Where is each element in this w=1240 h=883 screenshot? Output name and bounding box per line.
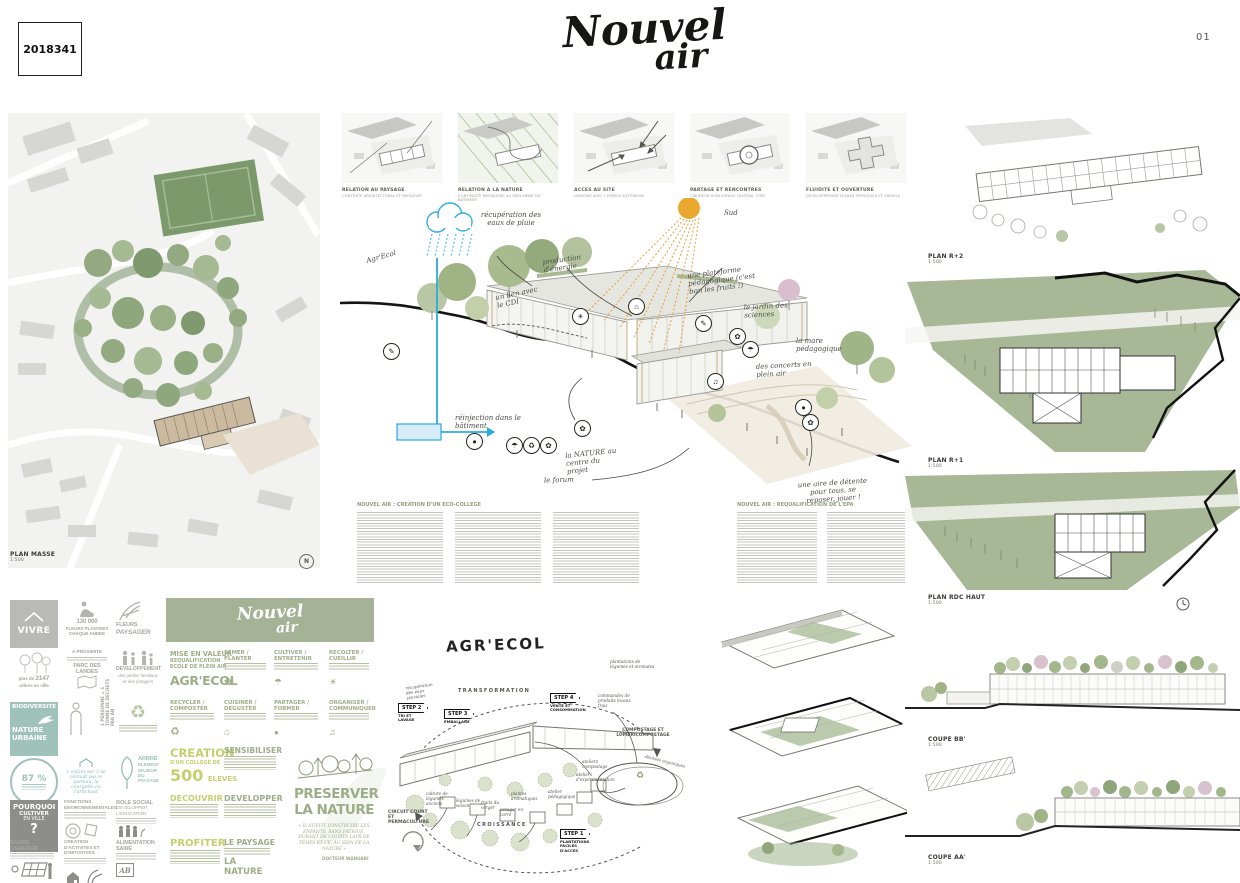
music-icon: ♫ (707, 373, 724, 390)
small-house-icon (78, 758, 94, 768)
concept-1-drawing (342, 113, 442, 183)
annotation-rain: récupération des eaux de pluie (478, 212, 544, 228)
action-recycler-label: RECYCLER / COMPOSTER (170, 700, 220, 712)
body-text-column (553, 512, 639, 584)
coupe-bb-scale: 1:500 (928, 743, 966, 748)
concept-diagram-1: RELATION AU PAYSAGE CONTEXTE ARCHITECTUR… (342, 113, 442, 198)
recycle-icon: ♻ (523, 437, 540, 454)
action-organiser: ORGANISER / COMMUNIQUER ♫ (329, 700, 373, 740)
sprout-icon: ✿ (224, 677, 232, 688)
note-expe: ateliers d'expérimentation (576, 773, 612, 783)
action-cultiver-label: CULTIVER / ENTRETENIR (274, 650, 324, 662)
plan-rdc-scale: 1:500 (928, 601, 985, 606)
project-logo: Nouvel air (543, 3, 746, 79)
site-plan-scale: 1:500 (10, 558, 55, 563)
stat-bio-l3: URBAINE (12, 734, 56, 742)
stat-activites: CREATION D'ACTIVITES ET D'INITIATIVES (64, 840, 110, 883)
keyword-profiter-label: PROFITER (170, 838, 224, 849)
annotation-sud: Sud (724, 210, 746, 218)
stat-alimentation: ALIMENTATION SAINE AB (116, 840, 160, 877)
competition-number-box: 2018341 (18, 22, 82, 76)
trees-outline-icon (17, 652, 51, 674)
watering-icon: ☂ (274, 677, 282, 687)
stat-dev-l2: des jardins familiaux et des potagers (116, 673, 160, 684)
plan-r2-drawing (950, 116, 1235, 248)
creation-l3: ELEVES (208, 775, 237, 783)
keyword-developper-label: DEVELOPPER (224, 794, 282, 803)
site-plan-label: PLAN MASSE 1:500 (10, 551, 55, 563)
text-heading-right: NOUVEL AIR : REQUALIFICATION DE L'EPA (737, 502, 907, 508)
coupe-aa-title: COUPE AA' (928, 854, 966, 861)
paysage-block: LE PAYSAGE LA NATURE (224, 838, 276, 877)
page-number: 01 (1196, 32, 1211, 43)
circuit-label: CIRCUIT COURT ET PERMACULTURE (388, 810, 434, 825)
clock-icon (1176, 597, 1190, 611)
text-heading-left: NOUVEL AIR : CREATION D'UN ECO-COLLEGE (357, 502, 527, 508)
competition-number: 2018341 (23, 43, 77, 56)
stat-paysager: FLEURS PAYSAGER (116, 600, 160, 636)
step3-flag-text: STEP 3 (444, 709, 474, 719)
stat-arbre: ARBRE ELEMENT MAJEUR DU PAYSAGE (116, 756, 160, 790)
stat-enfant: 1 enfant sur 3 ne connaît pas le poireau… (62, 758, 110, 795)
person-icon (68, 702, 84, 736)
step3-flag: STEP 3 EMBALLAGE (444, 702, 474, 724)
coupe-aa-scale: 1:500 (928, 861, 966, 866)
preserver-l2: LA NATURE (294, 802, 374, 818)
community-icon (116, 824, 146, 838)
logo-line1: Nouvel (543, 3, 745, 55)
preserver-l1: PRESERVER (294, 786, 374, 802)
stat-dechets: 1 PERSONNE = 1 TONNE DE DECHETS PAR AN (66, 700, 112, 756)
ab-logo: AB (116, 863, 134, 877)
keyword-profiter: PROFITER (170, 838, 224, 864)
pond-icon: ☂ (742, 341, 759, 358)
step4-flag: STEP 4 VENTE ET CONSOMMATION (550, 686, 584, 713)
annotation-pond: la mare pédagogique (796, 338, 860, 354)
stat-pourquoi-l1: POURQUOI (13, 803, 55, 811)
leaf-icon: ✿ (574, 420, 591, 437)
house-roof-icon (24, 612, 44, 626)
annotation-reinject: réinjection dans le bâtiment (455, 415, 529, 431)
garden-icon: ✿ (729, 328, 746, 345)
step2-flag-text: STEP 2 (398, 703, 428, 713)
stat-energie: BAISSE D'ENERGIE (10, 840, 58, 883)
platform-icon: ✎ (695, 315, 712, 332)
action-organiser-label: ORGANISER / COMMUNIQUER (329, 700, 373, 712)
plan-r1-drawing (905, 268, 1240, 454)
plan-r2-scale: 1:500 (928, 260, 963, 265)
stat-biodiversite: BIODIVERSITE NATURE URBAINE (10, 702, 58, 756)
recycle-small-icon: ♻ (170, 726, 180, 738)
people-icon: ● (274, 728, 279, 737)
note-aroma: plantes aromatiques (511, 792, 543, 802)
stat-proximite-l2: PARC DES LANDES (64, 663, 110, 676)
step3-label: EMBALLAGE (444, 720, 474, 724)
note-anciens: culture de légumes anciens (426, 792, 458, 806)
note-commandes: commandes de produits locaux frais (598, 694, 640, 708)
concept-diagram-4: PARTAGE ET RENCONTRES CREATION D'UN ESPA… (690, 113, 790, 198)
note-potager: potager en carré (500, 808, 526, 818)
stat-arbres: plus de 2147 arbres en ville (10, 652, 58, 688)
stat-fleurs-value: 130 000 (77, 619, 98, 625)
site-plan-title: PLAN MASSE (10, 551, 55, 558)
paysage-l2: LA NATURE (224, 857, 276, 877)
exploded-axon-drawing (692, 600, 907, 880)
keyword-decouvrir-label: DECOUVRIR (170, 794, 222, 803)
compost-label: COMPOSTAGE ET LOMBRICOMPOSTAGE (614, 728, 672, 738)
palm-leaf-icon (116, 600, 142, 620)
concept-diagram-3: ACCES AU SITE LIAISONS AVEC L'ESPACE EXT… (574, 113, 674, 198)
coupe-bb-title: COUPE BB' (928, 736, 966, 743)
green-panel-header: Nouvel air (166, 598, 374, 642)
north-letter: N (304, 558, 309, 565)
nature-quote: « IL SUFFIT D'INSTRUIRE LES ENFANTS, SAN… (296, 824, 372, 853)
plan-rdc-drawing (905, 468, 1240, 592)
action-recolter-label: RECOLTER / CUEILLIR (329, 650, 373, 662)
megaphone-icon: ♫ (329, 727, 336, 737)
activities-icons (64, 864, 104, 883)
preserver-title: PRESERVER LA NATURE (294, 786, 374, 818)
keyword-sensibiliser: SENSIBILISER (224, 746, 284, 770)
competition-board: 2018341 Nouvel air 01 (0, 0, 1240, 883)
note-atelier: atelier pédagogique (548, 790, 578, 800)
stat-role-l2: DEVELOPPER L'EDUCATION (116, 806, 160, 817)
recycle-mini-icon: ♻ (636, 770, 644, 781)
dot-icon: ● (466, 433, 483, 450)
umbrella-icon: ☂ (506, 437, 523, 454)
quote-author: DOCTEUR WANGARI (322, 856, 369, 861)
farmer-icon: ☀ (329, 677, 337, 687)
stat-bio-l1: BIODIVERSITE (12, 704, 56, 710)
sun-icon: ☀ (572, 308, 589, 325)
concept-5-drawing (806, 113, 906, 183)
step1-label: PLANTATIONS FACILES D'ACCES (560, 840, 596, 853)
plan-rdc-title: PLAN RDC HAUT (928, 594, 985, 601)
paysage-l1: LE PAYSAGE (224, 838, 276, 847)
gardener-icon (76, 600, 98, 618)
play-icon: ✿ (802, 414, 819, 431)
stat-role: ROLE SOCIAL DEVELOPPER L'EDUCATION (116, 800, 160, 841)
roof-trees (994, 655, 1218, 674)
concept-diagram-2: RELATION A LA NATURE CONTINUITE PAYSAGER… (458, 113, 558, 203)
flower-icon: ✿ (540, 437, 557, 454)
concept-2-drawing (458, 113, 558, 183)
action-cultiver: CULTIVER / ENTRETENIR ☂ (274, 650, 324, 690)
site-plan-drawing (8, 113, 320, 568)
stat-developpement: DEVELOPPEMENT des jardins familiaux et d… (116, 650, 160, 684)
annotation-garden: le jardin des sciences (744, 301, 807, 320)
keyword-developper: DEVELOPPER (224, 794, 282, 818)
stat-arbres-label: arbres en ville (10, 683, 58, 688)
roof-trees (1061, 780, 1226, 798)
stat-enfant-label: 1 enfant sur 3 ne connaît pas le poireau… (62, 770, 110, 795)
body-text-column (827, 512, 905, 584)
sun (678, 198, 700, 219)
house-icon: ⌂ (628, 298, 645, 315)
stat-dechets-label: 1 PERSONNE = 1 TONNE DE DECHETS PAR AN (100, 676, 115, 726)
bird-icon (36, 710, 56, 726)
step4-flag-text: STEP 4 (550, 693, 580, 703)
stat-fleurs-label: FLEURS PLANTEES CHAQUE ANNEE (64, 626, 110, 637)
keyword-sensibiliser-label: SENSIBILISER (224, 746, 284, 755)
plan-rdc-label: PLAN RDC HAUT 1:500 (928, 594, 985, 606)
note-saison: légumes de saison (456, 799, 482, 809)
coupe-aa-label: COUPE AA' 1:500 (928, 854, 966, 866)
action-recolter: RECOLTER / CUEILLIR ☀ (329, 650, 373, 690)
keyword-decouvrir: DECOUVRIR (170, 794, 222, 818)
solar-panel-icon (10, 859, 54, 883)
tree-leaf-icon (116, 756, 138, 790)
concept-3-drawing (574, 113, 674, 183)
stat-fonctions-l1: FONCTIONS ENVIRONNEMENTALES (64, 800, 110, 811)
body-text-column (455, 512, 541, 584)
step1-flag-text: STEP 1 (560, 829, 590, 839)
family-icon (120, 650, 156, 666)
ab-logo-text: AB (119, 866, 130, 875)
concept-diagram-5: FLUIDITE ET OUVERTURE DEVELOPPEMENT D'AX… (806, 113, 906, 198)
action-cuisiner-label: CUISINER / DEGUSTER (224, 700, 270, 712)
coupe-bb-label: COUPE BB' 1:500 (928, 736, 966, 748)
action-recycler: RECYCLER / COMPOSTER ♻ (170, 700, 220, 740)
stat-paysager-l2: PAYSAGER (116, 629, 160, 636)
arc-label-croissance: CROISSANCE (477, 822, 527, 828)
stat-87-value: 87 % (22, 774, 47, 784)
plan-r2-label: PLAN R+2 1:500 (928, 253, 963, 265)
creation-big: 500 (170, 766, 203, 785)
action-semer-label: SEMER / PLANTER (224, 650, 270, 662)
stat-pourquoi-q: ? (13, 822, 55, 837)
stat-proximite-l1: A PROXIMITE (64, 650, 110, 656)
coupe-bb-drawing (905, 612, 1240, 734)
stat-activites-l1: CREATION D'ACTIVITES ET D'INITIATIVES (64, 840, 110, 857)
rain-cloud (427, 203, 472, 232)
pencil-icon: ✎ (383, 343, 400, 360)
stat-energie-l1: BAISSE D'ENERGIE (10, 840, 58, 852)
annotation-forum: le forum (544, 476, 578, 485)
stat-alim-l1: ALIMENTATION SAINE (116, 840, 160, 852)
plan-r2-title: PLAN R+2 (928, 253, 963, 260)
action-cuisiner: CUISINER / DEGUSTER ⌂ (224, 700, 270, 740)
action-partager-label: PARTAGER / FORMER (274, 700, 324, 712)
note-compost: ateliers compostage (582, 760, 612, 770)
body-text-column (737, 512, 817, 584)
step2-label: TRI ET LAVAGE (398, 714, 426, 723)
stat-recycle: ♻ (116, 702, 160, 735)
hedge-sketch (296, 740, 374, 782)
plan-r1-title: PLAN R+1 (928, 457, 963, 464)
environment-icons (64, 820, 100, 840)
body-text-column (357, 512, 443, 584)
action-partager: PARTAGER / FORMER ● (274, 700, 324, 740)
stat-fonctions: FONCTIONS ENVIRONNEMENTALES (64, 800, 110, 843)
recycle-glyph-icon: ♻ (130, 702, 146, 722)
map-icon (77, 675, 97, 689)
stat-vivre-label: VIVRE (18, 626, 51, 636)
note-plantations: plantations de légumes et aromates (610, 660, 656, 670)
step1-flag: STEP 1 PLANTATIONS FACILES D'ACCES (560, 822, 596, 853)
coupe-aa-drawing (905, 752, 1240, 852)
stat-arbres-pre: plus de (19, 676, 34, 681)
arc-label-transformation: TRANSFORMATION (458, 688, 530, 694)
step4-label: VENTE ET CONSOMMATION (550, 704, 584, 713)
concept-4-drawing (690, 113, 790, 183)
stat-87: 87 % (10, 758, 58, 806)
action-semer: SEMER / PLANTER ✿ (224, 650, 270, 690)
north-arrow-icon: N (299, 554, 314, 569)
green-logo-line2: air (276, 622, 298, 636)
stat-arbres-value: 2147 (35, 675, 49, 682)
chef-icon: ⌂ (224, 727, 230, 738)
stat-vivre: VIVRE (10, 600, 58, 648)
stat-fleurs: 130 000 FLEURS PLANTEES CHAQUE ANNEE (64, 600, 110, 637)
